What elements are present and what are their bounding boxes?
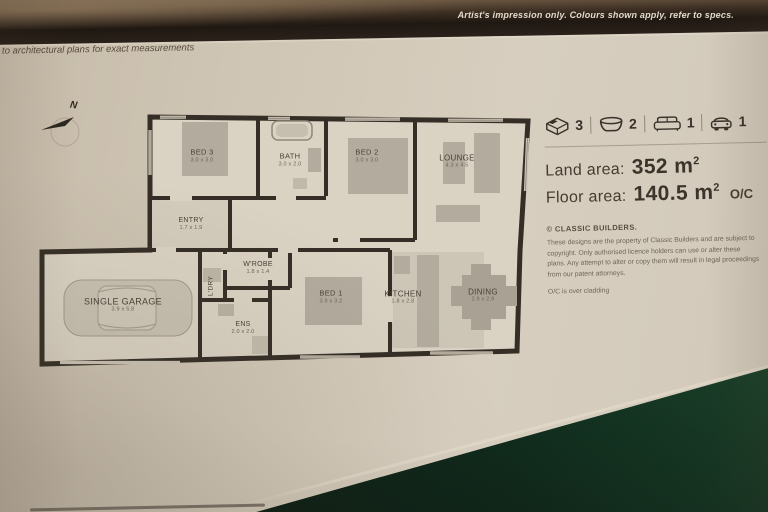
- bathrooms-count: 2: [629, 116, 637, 132]
- room-name: BED 3: [190, 149, 213, 158]
- room-dims: 3.0 x 2.0: [279, 161, 302, 167]
- paper-edge-highlight: [238, 362, 768, 507]
- room-label-kitchen: KITCHEN1.8 x 2.8: [384, 289, 421, 305]
- living-count: 1: [687, 114, 695, 130]
- floor-area-value: 140.5 m2: [633, 181, 720, 207]
- north-arrow-icon: [41, 117, 79, 146]
- areas-block: Land area: 352 m2 Floor area: 140.5 m2 O…: [545, 152, 768, 208]
- room-label-wardrobe: W'ROBE1.8 x 1.4: [243, 261, 273, 275]
- north-label: N: [69, 100, 78, 112]
- sofa-icon: [652, 113, 682, 133]
- room-label-bed-2: BED 23.0 x 3.0: [355, 149, 378, 164]
- bath-toilet: [293, 178, 307, 189]
- spec-divider: [644, 115, 645, 132]
- bed2-bed: [348, 138, 408, 194]
- room-dims: 3.9 x 3.2: [320, 298, 343, 304]
- land-area-value: 352 m2: [631, 154, 700, 180]
- bath-vanity: [308, 148, 321, 172]
- floor-area-label: Floor area:: [546, 188, 627, 208]
- room-label-ensuite: ENS2.0 x 2.0: [232, 321, 255, 335]
- room-name: BED 2: [355, 149, 378, 158]
- spec-divider: [701, 114, 702, 131]
- garage-spec: 1: [709, 111, 746, 132]
- spec-divider: [590, 116, 591, 133]
- room-label-entry: ENTRY1.7 x 1.9: [178, 217, 203, 231]
- measurements-disclaimer: to architectural plans for exact measure…: [2, 42, 194, 56]
- room-name: W'ROBE: [243, 261, 273, 269]
- room-dims: 3.9 x 5.8: [112, 307, 135, 313]
- photo-top-shadow-band: [0, 0, 768, 45]
- paper-bottom-shadow: [30, 504, 265, 512]
- room-label-bed-1: BED 13.9 x 3.2: [319, 290, 342, 305]
- room-name: ENTRY: [178, 217, 203, 225]
- room-label-garage: SINGLE GARAGE3.9 x 5.8: [84, 297, 162, 314]
- room-dims: 2.0 x 2.0: [232, 329, 255, 335]
- ens-shower: [252, 336, 268, 354]
- bedrooms-count: 3: [575, 117, 583, 133]
- room-name: BATH: [280, 153, 301, 162]
- room-name: DINING: [468, 287, 498, 296]
- copyright-body: These designs are the property of Classi…: [547, 234, 761, 281]
- bath-icon: [598, 114, 624, 135]
- copyright-title: © CLASSIC BUILDERS.: [546, 220, 759, 234]
- floor-plan-brochure-photo: Artist's impression only. Colours shown …: [0, 0, 768, 512]
- room-label-laundry: L'DRY: [207, 276, 214, 296]
- living-spec: 1: [652, 113, 695, 133]
- room-dims: 4.3 x 4.5: [446, 162, 469, 168]
- room-dims: 2.9 x 2.9: [472, 296, 495, 302]
- room-dims: 1.8 x 1.4: [247, 269, 270, 275]
- room-dims: 1.7 x 1.9: [180, 225, 203, 231]
- land-area-line: Land area: 352 m2: [545, 152, 768, 181]
- car-icon: [709, 111, 733, 132]
- room-dims: 3.0 x 3.0: [356, 157, 379, 163]
- summary-panel: 3 2 1: [544, 107, 768, 295]
- legal-block: © CLASSIC BUILDERS. These designs are th…: [546, 220, 761, 296]
- room-name: L'DRY: [207, 276, 214, 296]
- room-label-lounge: LOUNGE4.3 x 4.5: [439, 153, 475, 169]
- land-area-label: Land area:: [545, 161, 625, 181]
- room-label-bed-3: BED 33.0 x 3.0: [190, 149, 213, 164]
- cladding-note: O/C is over cladding: [548, 284, 761, 296]
- bathrooms-spec: 2: [598, 114, 637, 135]
- room-name: SINGLE GARAGE: [84, 297, 162, 307]
- room-name: BED 1: [319, 290, 342, 299]
- bed-icon: [544, 115, 570, 137]
- room-dims: 1.8 x 2.8: [392, 298, 415, 304]
- room-label-bath: BATH3.0 x 2.0: [279, 153, 302, 168]
- floor-area-line: Floor area: 140.5 m2 O/C: [546, 179, 768, 208]
- room-dims: 3.0 x 3.0: [191, 157, 214, 163]
- kitchen-fridge: [394, 256, 410, 274]
- lounge-sofa-3: [436, 205, 480, 222]
- room-name: ENS: [235, 321, 250, 329]
- bedrooms-spec: 3: [544, 114, 583, 136]
- room-label-dining: DINING2.9 x 2.9: [468, 287, 498, 303]
- artist-impression-note: Artist's impression only. Colours shown …: [458, 10, 734, 20]
- room-name: LOUNGE: [439, 153, 475, 162]
- panel-divider-line: [545, 142, 767, 148]
- spec-icons-row: 3 2 1: [544, 107, 768, 138]
- lounge-sofa-2: [474, 133, 500, 193]
- floor-plan-drawing: [38, 96, 534, 374]
- room-name: KITCHEN: [384, 289, 421, 298]
- garage-count: 1: [738, 113, 746, 129]
- floor-area-suffix: O/C: [730, 186, 753, 202]
- ens-toilet: [218, 304, 234, 316]
